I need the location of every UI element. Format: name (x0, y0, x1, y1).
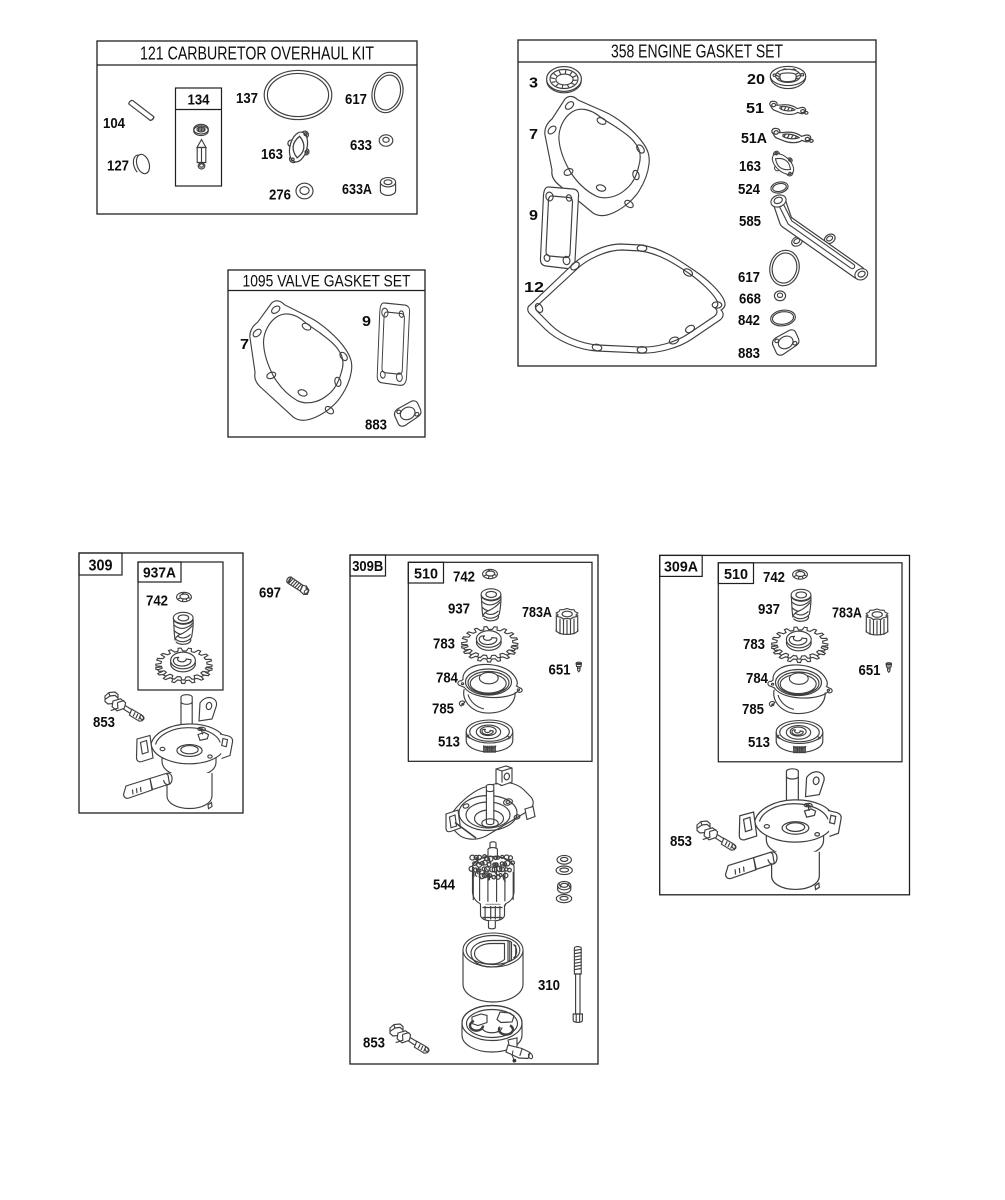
svg-text:633: 633 (350, 138, 372, 154)
svg-text:853: 853 (93, 715, 115, 731)
svg-text:7: 7 (529, 127, 538, 143)
svg-text:20: 20 (747, 72, 765, 88)
svg-text:783A: 783A (522, 605, 552, 621)
svg-text:1095 VALVE GASKET SET: 1095 VALVE GASKET SET (243, 273, 411, 291)
svg-text:137: 137 (236, 91, 258, 107)
svg-text:3: 3 (529, 76, 538, 92)
svg-text:937: 937 (448, 602, 470, 618)
svg-text:51A: 51A (741, 131, 768, 147)
svg-text:742: 742 (763, 570, 785, 586)
svg-text:51: 51 (746, 101, 764, 117)
svg-text:742: 742 (146, 594, 168, 610)
svg-text:127: 127 (107, 159, 129, 175)
svg-text:783: 783 (743, 637, 765, 653)
svg-text:309B: 309B (352, 559, 383, 575)
svg-text:134: 134 (188, 93, 210, 109)
svg-text:276: 276 (269, 188, 291, 204)
svg-text:697: 697 (259, 586, 281, 602)
svg-text:510: 510 (724, 567, 748, 583)
svg-text:853: 853 (670, 834, 692, 850)
svg-text:9: 9 (529, 208, 538, 224)
svg-text:783A: 783A (832, 606, 862, 622)
svg-text:163: 163 (739, 159, 761, 175)
svg-text:883: 883 (738, 346, 760, 362)
svg-text:121 CARBURETOR OVERHAUL KIT: 121 CARBURETOR OVERHAUL KIT (140, 43, 374, 64)
svg-text:937: 937 (758, 602, 780, 618)
svg-text:617: 617 (345, 92, 367, 108)
svg-text:853: 853 (363, 1036, 385, 1052)
svg-text:585: 585 (739, 214, 761, 230)
svg-text:784: 784 (436, 671, 458, 687)
svg-text:7: 7 (240, 337, 249, 353)
svg-text:883: 883 (365, 418, 387, 434)
svg-text:513: 513 (438, 735, 460, 751)
svg-text:513: 513 (748, 735, 770, 751)
svg-text:617: 617 (738, 270, 760, 286)
svg-text:651: 651 (549, 663, 571, 679)
svg-text:12: 12 (524, 280, 544, 296)
svg-text:104: 104 (103, 116, 125, 132)
svg-text:309A: 309A (664, 560, 699, 576)
svg-text:524: 524 (738, 182, 760, 198)
svg-text:668: 668 (739, 292, 761, 308)
svg-text:842: 842 (738, 313, 760, 329)
svg-text:358 ENGINE GASKET SET: 358 ENGINE GASKET SET (611, 41, 783, 62)
svg-text:310: 310 (538, 978, 560, 994)
svg-text:937A: 937A (143, 566, 176, 582)
svg-text:785: 785 (742, 702, 764, 718)
svg-text:163: 163 (261, 147, 283, 163)
svg-text:633A: 633A (342, 182, 372, 198)
svg-text:742: 742 (453, 570, 475, 586)
svg-text:651: 651 (859, 663, 881, 679)
svg-text:544: 544 (433, 878, 455, 894)
svg-text:785: 785 (432, 702, 454, 718)
svg-text:510: 510 (414, 567, 438, 583)
svg-text:309: 309 (89, 558, 113, 575)
svg-text:9: 9 (362, 314, 371, 330)
svg-text:783: 783 (433, 637, 455, 653)
svg-text:784: 784 (746, 671, 768, 687)
